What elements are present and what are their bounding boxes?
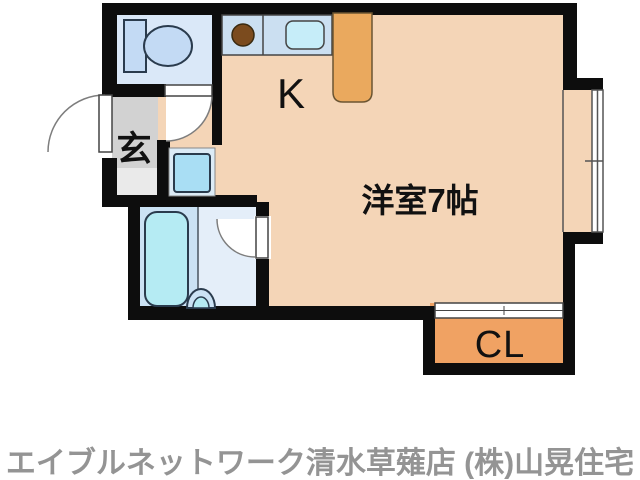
wall-entry-stub xyxy=(157,140,170,200)
main-room-label: 洋室7帖 xyxy=(361,182,478,219)
closet-label: CL xyxy=(475,324,526,366)
front-door xyxy=(48,95,112,152)
wall-bath-left xyxy=(128,195,140,320)
bay-floor xyxy=(560,85,592,235)
wall-right-upper xyxy=(563,3,577,90)
toilet-bowl xyxy=(144,26,192,66)
kitchen-sink-icon xyxy=(286,21,324,49)
bathroom-door-leaf xyxy=(256,217,268,258)
wall-bath-right-upper xyxy=(256,202,269,217)
wall-bottom-main xyxy=(128,306,435,320)
wall-toilet-right xyxy=(212,3,222,145)
bathtub-icon xyxy=(145,212,188,306)
wall-left-upper xyxy=(102,3,117,96)
floorplan-svg: K 洋室7帖 玄 CL xyxy=(0,0,640,480)
wall-bath-right-lower xyxy=(256,258,269,320)
toilet-tank xyxy=(124,20,146,72)
closet-sliding-door xyxy=(435,303,563,318)
washing-machine-icon xyxy=(169,148,215,196)
entry-step xyxy=(112,168,158,198)
wall-right-lower xyxy=(563,232,575,375)
stove-burner-icon xyxy=(232,24,254,46)
wall-bay-step-top xyxy=(563,78,603,90)
kitchen-label: K xyxy=(277,70,305,117)
refrigerator-space xyxy=(333,13,372,102)
agency-caption: エイブルネットワーク清水草薙店 (株)山晃住宅 xyxy=(0,438,640,480)
washer-pan xyxy=(174,154,210,192)
toilet-door-leaf xyxy=(165,85,212,96)
kitchen-counter xyxy=(222,15,332,55)
floorplan-page: K 洋室7帖 玄 CL エイブルネットワーク清水草薙店 (株)山晃住宅 xyxy=(0,0,640,480)
entrance-label: 玄 xyxy=(116,130,151,169)
wall-entry-bath-top xyxy=(102,195,257,207)
front-door-leaf xyxy=(99,95,112,152)
front-door-arc xyxy=(48,95,105,152)
